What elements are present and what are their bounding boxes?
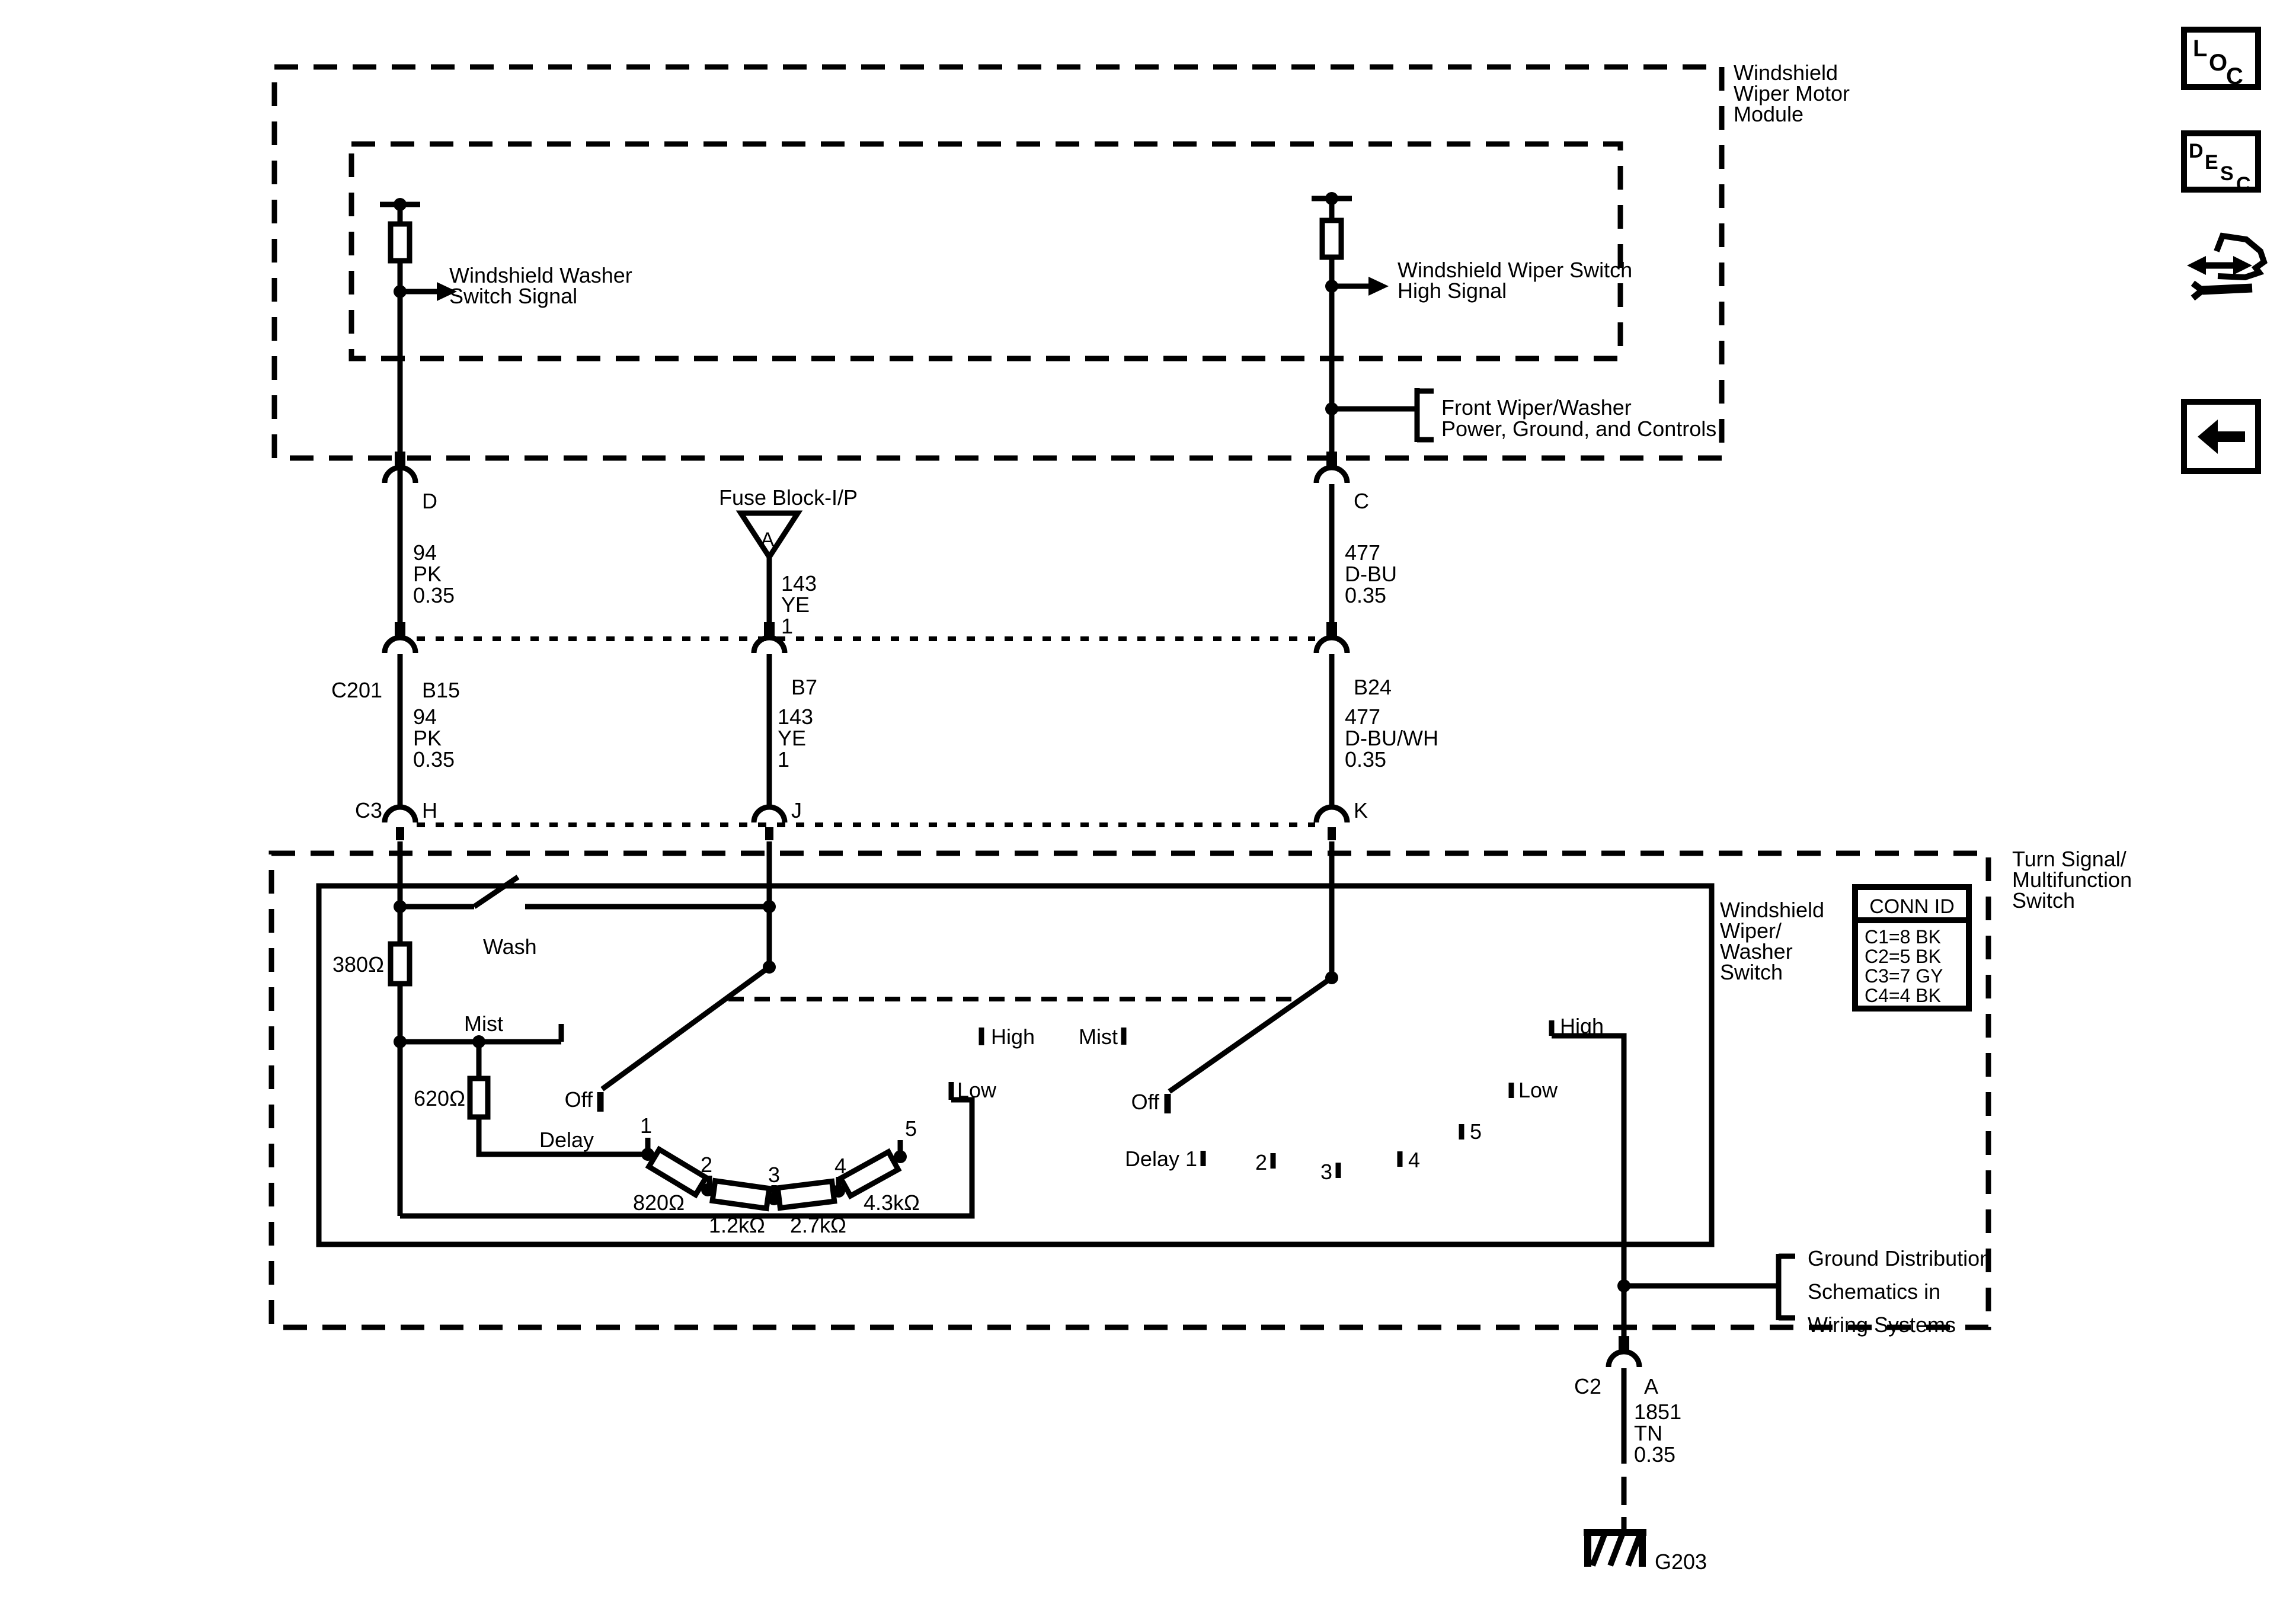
turn-signal-label: Turn Signal/ Multifunction Switch	[2012, 847, 2132, 913]
connector-label: C201	[331, 678, 382, 702]
resistor-380: 380Ω	[332, 944, 410, 984]
wire-circuit: 143	[781, 571, 817, 596]
wire-circuit: 94	[413, 705, 437, 729]
desc-letter: S	[2220, 162, 2234, 185]
wash-label: Wash	[483, 934, 537, 959]
ground-dist-label: Schematics in	[1808, 1279, 1940, 1304]
conn-id-row: C2=5 BK	[1865, 946, 1941, 967]
position-label: 3	[768, 1163, 780, 1187]
connector-label: C2	[1574, 1374, 1601, 1398]
junction-dot	[763, 900, 776, 913]
conn-id-table: CONN ID C1=8 BK C2=5 BK C3=7 GY C4=4 BK	[1855, 887, 1969, 1009]
pin-label: B7	[791, 675, 817, 699]
position-label: 1	[640, 1113, 652, 1138]
module-label-line: Switch	[2012, 888, 2075, 913]
back-arrow-head	[2198, 420, 2218, 454]
signal-arrow-icon	[1368, 277, 1389, 296]
wire-circuit: 477	[1345, 540, 1380, 565]
connector-cup-icon	[385, 807, 415, 822]
conn-id-title: CONN ID	[1869, 895, 1955, 918]
connector-cup-icon	[1316, 807, 1347, 822]
fuse-terminal-label: A	[761, 529, 775, 551]
resistor-value: 4.3kΩ	[864, 1190, 920, 1215]
delay-label: Delay	[539, 1128, 594, 1152]
position-label: 2	[1255, 1150, 1267, 1174]
wrench-jaw	[2193, 283, 2202, 298]
connector-c3-h: C3 H	[355, 798, 437, 1216]
arrow-left-head	[2187, 256, 2206, 275]
fuse-block-label: Fuse Block-I/P	[719, 485, 858, 510]
wire-color: D-BU	[1345, 562, 1397, 586]
module-label-line: Switch	[1720, 960, 1783, 984]
ground-symbol: G203	[1584, 1532, 1707, 1574]
connector-b24-k: B24 477 D-BU/WH 0.35 K	[1316, 622, 1438, 978]
wire-gauge: 1	[781, 614, 793, 638]
wire-color: YE	[781, 593, 810, 617]
pin-label: C	[1354, 489, 1369, 513]
delay-resistor-chain: 1 2 3 4 5 820Ω 1.2kΩ 2.7kΩ 4.3kΩ	[633, 1113, 920, 1237]
arrow-right-head	[2233, 256, 2252, 275]
fuse-block-branch: Fuse Block-I/P A 143 YE 1	[719, 485, 858, 638]
pin-label: B15	[422, 678, 460, 702]
conn-id-row: C1=8 BK	[1865, 926, 1941, 948]
switch-blade	[474, 877, 518, 907]
mist-label: Mist	[464, 1012, 503, 1036]
wire-circuit: 1851	[1634, 1400, 1681, 1424]
pin-label: A	[1644, 1374, 1658, 1398]
desc-letter: D	[2189, 140, 2204, 162]
off-label: Off	[565, 1087, 593, 1112]
resistor-symbol	[778, 1182, 834, 1208]
resistor-value: 620Ω	[414, 1086, 465, 1110]
resistor-symbol	[470, 1078, 488, 1117]
front-wiper-label: Power, Ground, and Controls	[1441, 417, 1716, 441]
wrench-icon	[2202, 288, 2252, 290]
washer-signal-label: Switch Signal	[449, 284, 577, 308]
low-label: Low	[1518, 1078, 1558, 1102]
desc-letter: C	[2236, 173, 2251, 196]
resistor-symbol	[649, 1150, 706, 1195]
wiring-diagram-page: Windshield Wiper Motor Module Turn Signa…	[0, 0, 2296, 1610]
loc-button[interactable]: L O C	[2184, 30, 2258, 89]
connector-cup-icon	[1609, 1352, 1639, 1367]
loc-letter: C	[2226, 63, 2243, 89]
mist-label: Mist	[1079, 1025, 1118, 1049]
low-label: Low	[957, 1078, 997, 1102]
wiper-high-label: High Signal	[1398, 279, 1507, 303]
connector-stub	[1326, 452, 1337, 466]
wiper-washer-switch-label: Windshield Wiper/ Washer Switch	[1720, 898, 1824, 984]
connector-cup-icon	[754, 638, 785, 653]
desc-button[interactable]: D E S C	[2184, 133, 2258, 196]
ground-hatch	[1628, 1535, 1640, 1566]
front-wiper-label: Front Wiper/Washer	[1441, 395, 1632, 420]
connector-c201-b15: C201 B15 94 PK 0.35	[331, 622, 460, 807]
loc-letter: L	[2193, 36, 2207, 62]
pin-label: J	[791, 798, 802, 822]
pin-label: K	[1354, 798, 1368, 822]
position-label: 4	[1408, 1148, 1420, 1172]
connector-stub	[396, 827, 404, 840]
connector-label: C3	[355, 798, 382, 822]
position-label: 3	[1320, 1160, 1332, 1184]
back-arrow-icon	[2218, 431, 2245, 442]
wire-circuit: 94	[413, 540, 437, 565]
connector-stub	[1326, 622, 1337, 636]
wire-circuit: 143	[778, 705, 813, 729]
wire-gauge: 0.35	[413, 583, 455, 607]
connector-cup-icon	[1316, 638, 1347, 653]
resistor-symbol	[712, 1181, 769, 1208]
ground-hatch	[1593, 1535, 1604, 1566]
resistor-value: 820Ω	[633, 1190, 685, 1215]
wire	[1552, 1036, 1624, 1286]
desc-letter: E	[2205, 151, 2218, 174]
schematic-reference-button[interactable]	[2187, 236, 2264, 298]
wire-circuit: 477	[1345, 705, 1380, 729]
ground-dist-label: Wiring Systems	[1808, 1313, 1956, 1337]
off-label: Off	[1131, 1090, 1160, 1114]
ground-distribution-branch: Ground Distribution Schematics in Wiring…	[1617, 1246, 1991, 1337]
position-label: 5	[905, 1116, 917, 1141]
wire-color: PK	[413, 726, 442, 750]
switch-blade	[602, 967, 769, 1089]
high-label: High	[991, 1025, 1035, 1049]
resistor-symbol	[1322, 220, 1341, 257]
connector-cup-icon	[754, 807, 785, 822]
connector-cup-icon	[1316, 468, 1347, 483]
back-button[interactable]	[2184, 402, 2258, 471]
connector-stub	[764, 622, 775, 636]
loc-letter: O	[2209, 50, 2227, 76]
wire-gauge: 1	[778, 747, 789, 772]
wire-gauge: 0.35	[413, 747, 455, 772]
ground-id-label: G203	[1655, 1550, 1707, 1574]
right-switch-wiper: Off Mist Delay 1 2 3 4 5 Low High	[1079, 971, 1624, 1286]
connector-stub	[765, 827, 773, 840]
ground-dist-label: Ground Distribution	[1808, 1246, 1991, 1270]
connector-cup-icon	[385, 638, 415, 653]
connector-b7-j: B7 143 YE 1 J	[754, 622, 817, 967]
wire-color: D-BU/WH	[1345, 726, 1438, 750]
wire-gauge: 0.35	[1345, 747, 1386, 772]
resistor-symbol	[841, 1152, 898, 1196]
conn-id-row: C3=7 GY	[1865, 965, 1943, 987]
wiper-high-branch: Windshield Wiper Switch High Signal Fron…	[1312, 192, 1716, 452]
wire-color: YE	[778, 726, 806, 750]
resistor-value: 380Ω	[332, 952, 384, 977]
pin-label: B24	[1354, 675, 1392, 699]
ground-hatch	[1610, 1535, 1622, 1566]
wash-switch: Wash	[394, 877, 776, 959]
wire-color: PK	[413, 562, 442, 586]
connector-stub	[1328, 827, 1336, 840]
pin-label: H	[422, 798, 437, 822]
wiring-diagram: Windshield Wiper Motor Module Turn Signa…	[0, 0, 2296, 1610]
conn-id-row: C4=4 BK	[1865, 985, 1941, 1006]
delay1-label: Delay 1	[1125, 1147, 1197, 1171]
connector-d: D 94 PK 0.35	[385, 452, 455, 622]
wiper-motor-inner-box	[351, 144, 1620, 359]
resistor-symbol	[391, 944, 410, 984]
position-label: 4	[834, 1154, 846, 1178]
wire-gauge: 0.35	[1345, 583, 1386, 607]
wire-color: TN	[1634, 1421, 1662, 1445]
wire-gauge: 0.35	[1634, 1442, 1675, 1467]
position-label: 5	[1470, 1119, 1482, 1144]
resistor-symbol	[391, 224, 410, 261]
position-label: 2	[701, 1153, 712, 1177]
module-label-line: Module	[1734, 102, 1803, 126]
switch-blade	[1169, 978, 1332, 1092]
wiper-motor-module-label: Windshield Wiper Motor Module	[1734, 60, 1850, 126]
connector-stub	[395, 452, 405, 466]
pin-label: D	[422, 489, 437, 513]
connector-c: C 477 D-BU 0.35	[1316, 452, 1397, 622]
connector-c2: C2 A 1851 TN 0.35	[1574, 1336, 1681, 1532]
connector-stub	[395, 622, 405, 636]
